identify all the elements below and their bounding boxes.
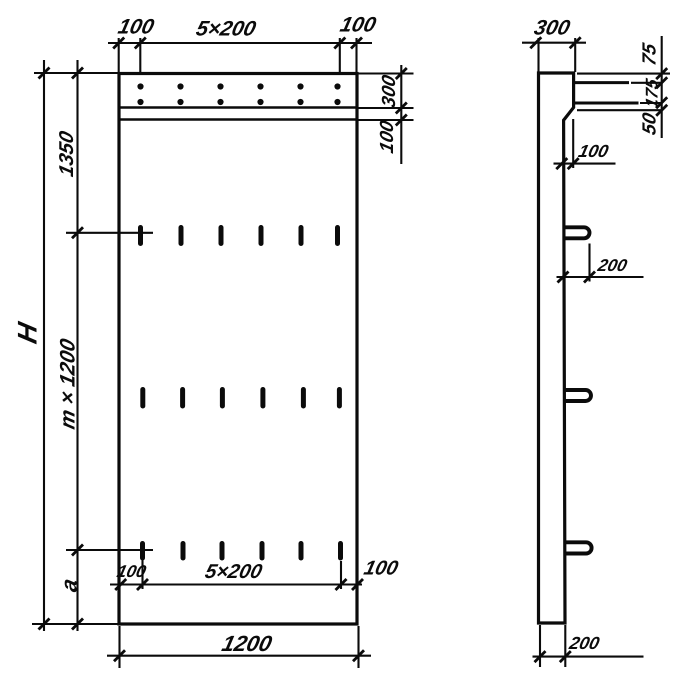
svg-text:1200: 1200 [220, 631, 275, 656]
svg-text:75: 75 [640, 41, 661, 67]
svg-text:300: 300 [532, 17, 573, 40]
svg-text:300: 300 [379, 73, 400, 110]
svg-text:100: 100 [338, 14, 379, 37]
svg-text:5×200: 5×200 [194, 18, 259, 41]
svg-text:200: 200 [567, 633, 602, 653]
svg-text:1350: 1350 [56, 129, 78, 179]
svg-text:5×200: 5×200 [203, 561, 264, 583]
svg-text:200: 200 [595, 256, 629, 275]
svg-text:100: 100 [362, 558, 400, 580]
svg-text:100: 100 [577, 141, 611, 161]
svg-text:m × 1200: m × 1200 [57, 336, 80, 431]
svg-text:175: 175 [643, 77, 662, 110]
svg-text:H: H [13, 319, 43, 346]
svg-text:100: 100 [115, 562, 148, 581]
svg-text:100: 100 [377, 118, 398, 155]
svg-text:100: 100 [116, 16, 157, 39]
